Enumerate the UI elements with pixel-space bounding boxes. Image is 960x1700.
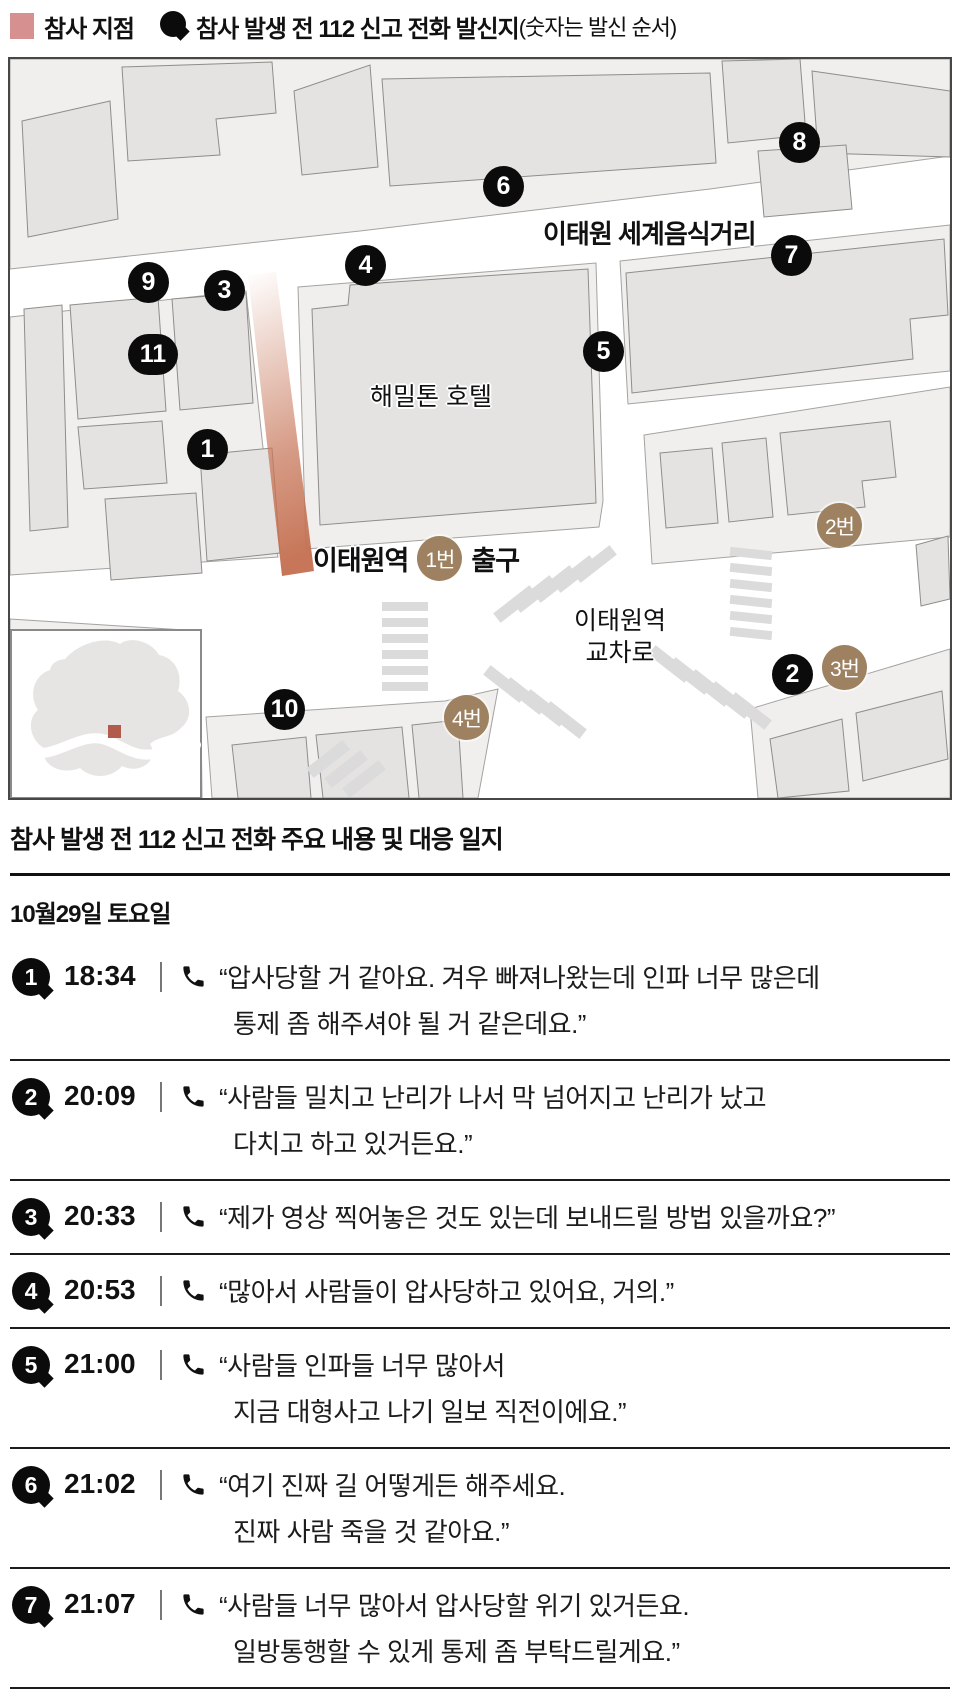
map-pin-5: 5 (583, 331, 624, 372)
exit-word: 출구 (471, 539, 519, 578)
call-row-4: 4 20:53 “많아서 사람들이 압사당하고 있어요, 거의.” (10, 1255, 950, 1329)
divider-bar (160, 1082, 162, 1112)
call-time: 20:53 (64, 1274, 152, 1306)
map-pin-7: 7 (771, 235, 812, 276)
disaster-spot-label: 참사 지점 (44, 9, 134, 44)
call-number-badge: 1 (12, 958, 50, 996)
hamilton-hotel-label: 해밀톤 호텔 (370, 377, 492, 413)
date-heading: 10월29일 토요일 (10, 894, 950, 929)
station-exit-label: 이태원역 1번 출구 (313, 536, 519, 581)
section-divider (10, 873, 950, 876)
call-quote: “사람들 밀치고 난리가 나서 막 넘어지고 난리가 났고 다치고 하고 있거든… (219, 1075, 950, 1167)
call-time: 20:33 (64, 1200, 152, 1232)
call-quote: “압사당할 거 같아요. 겨우 빠져나왔는데 인파 너무 많은데 통제 좀 해주… (219, 955, 950, 1047)
map-pin-8: 8 (779, 122, 820, 163)
divider-bar (160, 962, 162, 992)
call-number-badge: 3 (12, 1198, 50, 1236)
call-origin-note: (숫자는 발신 순서) (519, 10, 677, 42)
map-pin-10: 10 (264, 689, 305, 730)
phone-icon (180, 1277, 207, 1304)
call-number-badge: 5 (12, 1346, 50, 1384)
call-quote: “사람들 인파들 너무 많아서 지금 대형사고 나기 일보 직전이에요.” (219, 1343, 950, 1435)
divider-bar (160, 1590, 162, 1620)
exit-3-badge: 3번 (822, 645, 867, 690)
call-number-badge: 7 (12, 1586, 50, 1624)
map-pin-3: 3 (204, 270, 245, 311)
phone-icon (180, 1083, 207, 1110)
map-pin-11: 11 (128, 334, 178, 375)
map-pin-2: 2 (772, 654, 813, 695)
call-row-6: 6 21:02 “여기 진짜 길 어떻게든 해주세요. 진짜 사람 죽을 것 같… (10, 1449, 950, 1569)
call-balloon-icon (160, 11, 186, 37)
divider-bar (160, 1202, 162, 1232)
call-time: 18:34 (64, 960, 152, 992)
call-row-7: 7 21:07 “사람들 너무 많아서 압사당할 위기 있거든요. 일방통행할 … (10, 1569, 950, 1689)
phone-icon (180, 1351, 207, 1378)
section-title: 참사 발생 전 112 신고 전화 주요 내용 및 대응 일지 (10, 820, 950, 856)
map-canvas (10, 59, 950, 798)
call-row-3: 3 20:33 “제가 영상 찍어놓은 것도 있는데 보내드릴 방법 있을까요?… (10, 1181, 950, 1255)
phone-icon (180, 1203, 207, 1230)
exit-1-badge: 1번 (417, 536, 462, 581)
itaewon-map: 이태원 세계음식거리 해밀톤 호텔 이태원역 1번 출구 이태원역 교차로 2번… (8, 57, 952, 800)
map-pin-9: 9 (128, 262, 169, 303)
call-quote: “여기 진짜 길 어떻게든 해주세요. 진짜 사람 죽을 것 같아요.” (219, 1463, 950, 1555)
phone-icon (180, 963, 207, 990)
call-number-badge: 6 (12, 1466, 50, 1504)
call-quote: “많아서 사람들이 압사당하고 있어요, 거의.” (219, 1269, 950, 1315)
call-row-2: 2 20:09 “사람들 밀치고 난리가 나서 막 넘어지고 난리가 났고 다치… (10, 1061, 950, 1181)
call-number-badge: 4 (12, 1272, 50, 1310)
call-number-badge: 2 (12, 1078, 50, 1116)
call-row-5: 5 21:00 “사람들 인파들 너무 많아서 지금 대형사고 나기 일보 직전… (10, 1329, 950, 1449)
call-time: 21:00 (64, 1348, 152, 1380)
call-time: 21:02 (64, 1468, 152, 1500)
divider-bar (160, 1470, 162, 1500)
call-row-1: 1 18:34 “압사당할 거 같아요. 겨우 빠져나왔는데 인파 너무 많은데… (10, 941, 950, 1061)
call-time: 20:09 (64, 1080, 152, 1112)
phone-icon (180, 1591, 207, 1618)
divider-bar (160, 1276, 162, 1306)
phone-icon (180, 1471, 207, 1498)
legend: 참사 지점 참사 발생 전 112 신고 전화 발신지 (숫자는 발신 순서) (10, 8, 676, 44)
inset-itaewon-marker (108, 725, 121, 738)
crossing-label: 이태원역 교차로 (555, 605, 685, 669)
exit-2-badge: 2번 (817, 503, 862, 548)
divider-bar (160, 1350, 162, 1380)
map-pin-1: 1 (187, 429, 228, 470)
street-label-world-food-street: 이태원 세계음식거리 (543, 214, 756, 251)
map-pin-6: 6 (483, 166, 524, 207)
call-origin-label: 참사 발생 전 112 신고 전화 발신지 (196, 9, 519, 44)
map-pin-4: 4 (345, 245, 386, 286)
call-quote: “제가 영상 찍어놓은 것도 있는데 보내드릴 방법 있을까요?” (219, 1195, 950, 1241)
call-log-section: 참사 발생 전 112 신고 전화 주요 내용 및 대응 일지 10월29일 토… (10, 812, 950, 1689)
call-time: 21:07 (64, 1588, 152, 1620)
disaster-spot-swatch (10, 13, 34, 39)
exit-4-badge: 4번 (444, 695, 489, 740)
call-quote: “사람들 너무 많아서 압사당할 위기 있거든요. 일방통행할 수 있게 통제 … (219, 1583, 950, 1675)
seoul-inset-map (11, 630, 201, 798)
station-name: 이태원역 (313, 539, 408, 578)
